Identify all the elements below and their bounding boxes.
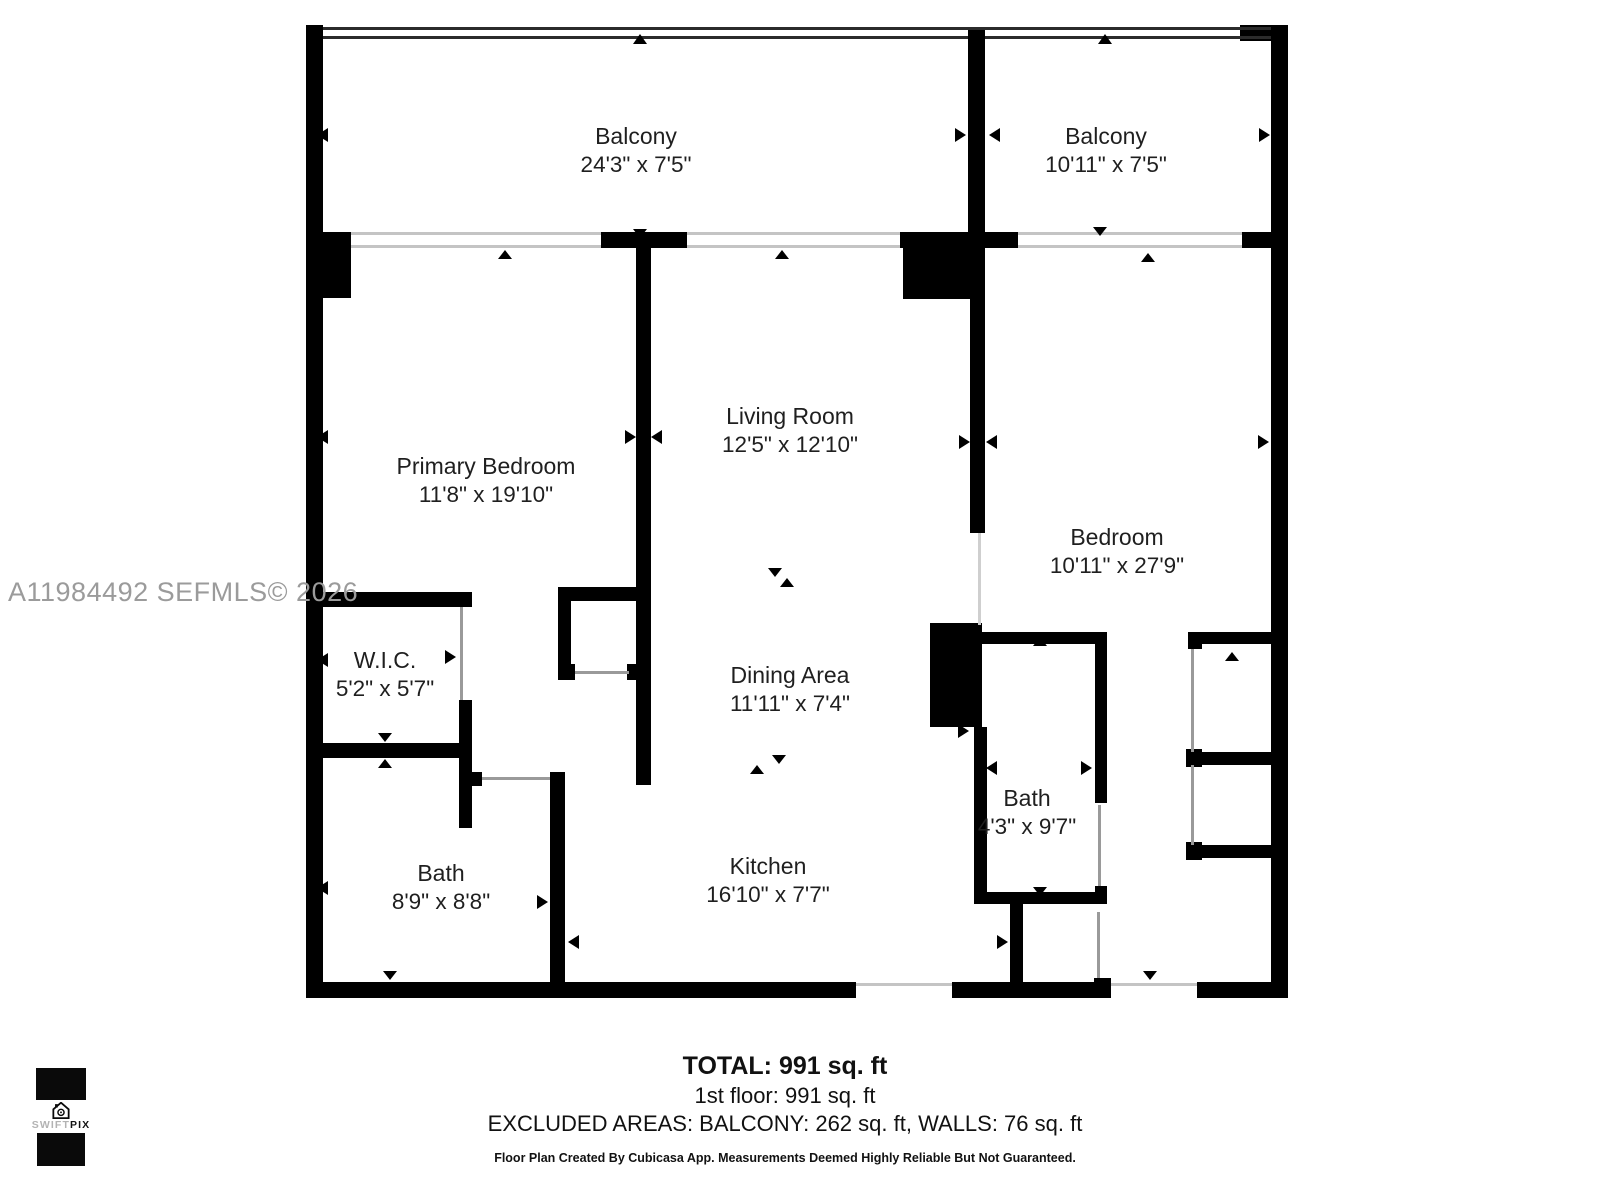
room-name: W.I.C. [336,646,434,675]
room-dims: 24'3" x 7'5" [581,150,692,178]
room-label-bath-2: Bath 4'3" x 9'7" [978,784,1076,840]
room-name: Bedroom [1050,523,1184,552]
room-name: Living Room [722,402,858,431]
logo-bottom-block [37,1133,85,1166]
room-name: Dining Area [730,661,850,690]
first-floor-area-text: 1st floor: 991 sq. ft [488,1083,1083,1109]
area-summary: TOTAL: 991 sq. ft 1st floor: 991 sq. ft … [488,1052,1083,1165]
room-label-wic: W.I.C. 5'2" x 5'7" [336,646,434,702]
room-label-living-room: Living Room 12'5" x 12'10" [722,402,858,458]
brand-pix: PIX [70,1119,90,1131]
room-label-dining-area: Dining Area 11'11" x 7'4" [730,661,850,717]
room-dims: 8'9" x 8'8" [392,887,490,915]
room-dims: 16'10" x 7'7" [706,880,829,908]
swiftpix-logo: SWIFTPIX [35,1068,87,1166]
room-label-balcony-1: Balcony 24'3" x 7'5" [581,122,692,178]
room-name: Bath [392,859,490,888]
room-name: Bath [978,784,1076,813]
balcony-railing [323,27,1271,39]
room-name: Balcony [581,122,692,151]
room-dims: 5'2" x 5'7" [336,674,434,702]
room-dims: 10'11" x 27'9" [1050,551,1184,579]
floor-plan-page: Balcony 24'3" x 7'5" Balcony 10'11" x 7'… [0,0,1600,1200]
room-name: Balcony [1045,122,1167,151]
house-camera-icon [52,1102,70,1119]
room-dims: 12'5" x 12'10" [722,430,858,458]
room-label-kitchen: Kitchen 16'10" x 7'7" [706,852,829,908]
room-label-primary-bedroom: Primary Bedroom 11'8" x 19'10" [397,452,576,508]
brand-swift: SWIFT [32,1119,70,1131]
total-area-text: TOTAL: 991 sq. ft [488,1052,1083,1081]
room-label-balcony-2: Balcony 10'11" x 7'5" [1045,122,1167,178]
room-dims: 4'3" x 9'7" [978,812,1076,840]
room-name: Primary Bedroom [397,452,576,481]
disclaimer-text: Floor Plan Created By Cubicasa App. Meas… [488,1151,1083,1165]
excluded-areas-text: EXCLUDED AREAS: BALCONY: 262 sq. ft, WAL… [488,1111,1083,1137]
room-label-bedroom: Bedroom 10'11" x 27'9" [1050,523,1184,579]
room-dims: 10'11" x 7'5" [1045,150,1167,178]
room-dims: 11'8" x 19'10" [397,480,576,508]
room-dims: 11'11" x 7'4" [730,689,850,717]
room-name: Kitchen [706,852,829,881]
logo-top-block [36,1068,86,1100]
room-label-bath-1: Bath 8'9" x 8'8" [392,859,490,915]
brand-text: SWIFTPIX [32,1120,90,1131]
mls-watermark: A11984492 SEFMLS© 2026 [8,577,358,608]
